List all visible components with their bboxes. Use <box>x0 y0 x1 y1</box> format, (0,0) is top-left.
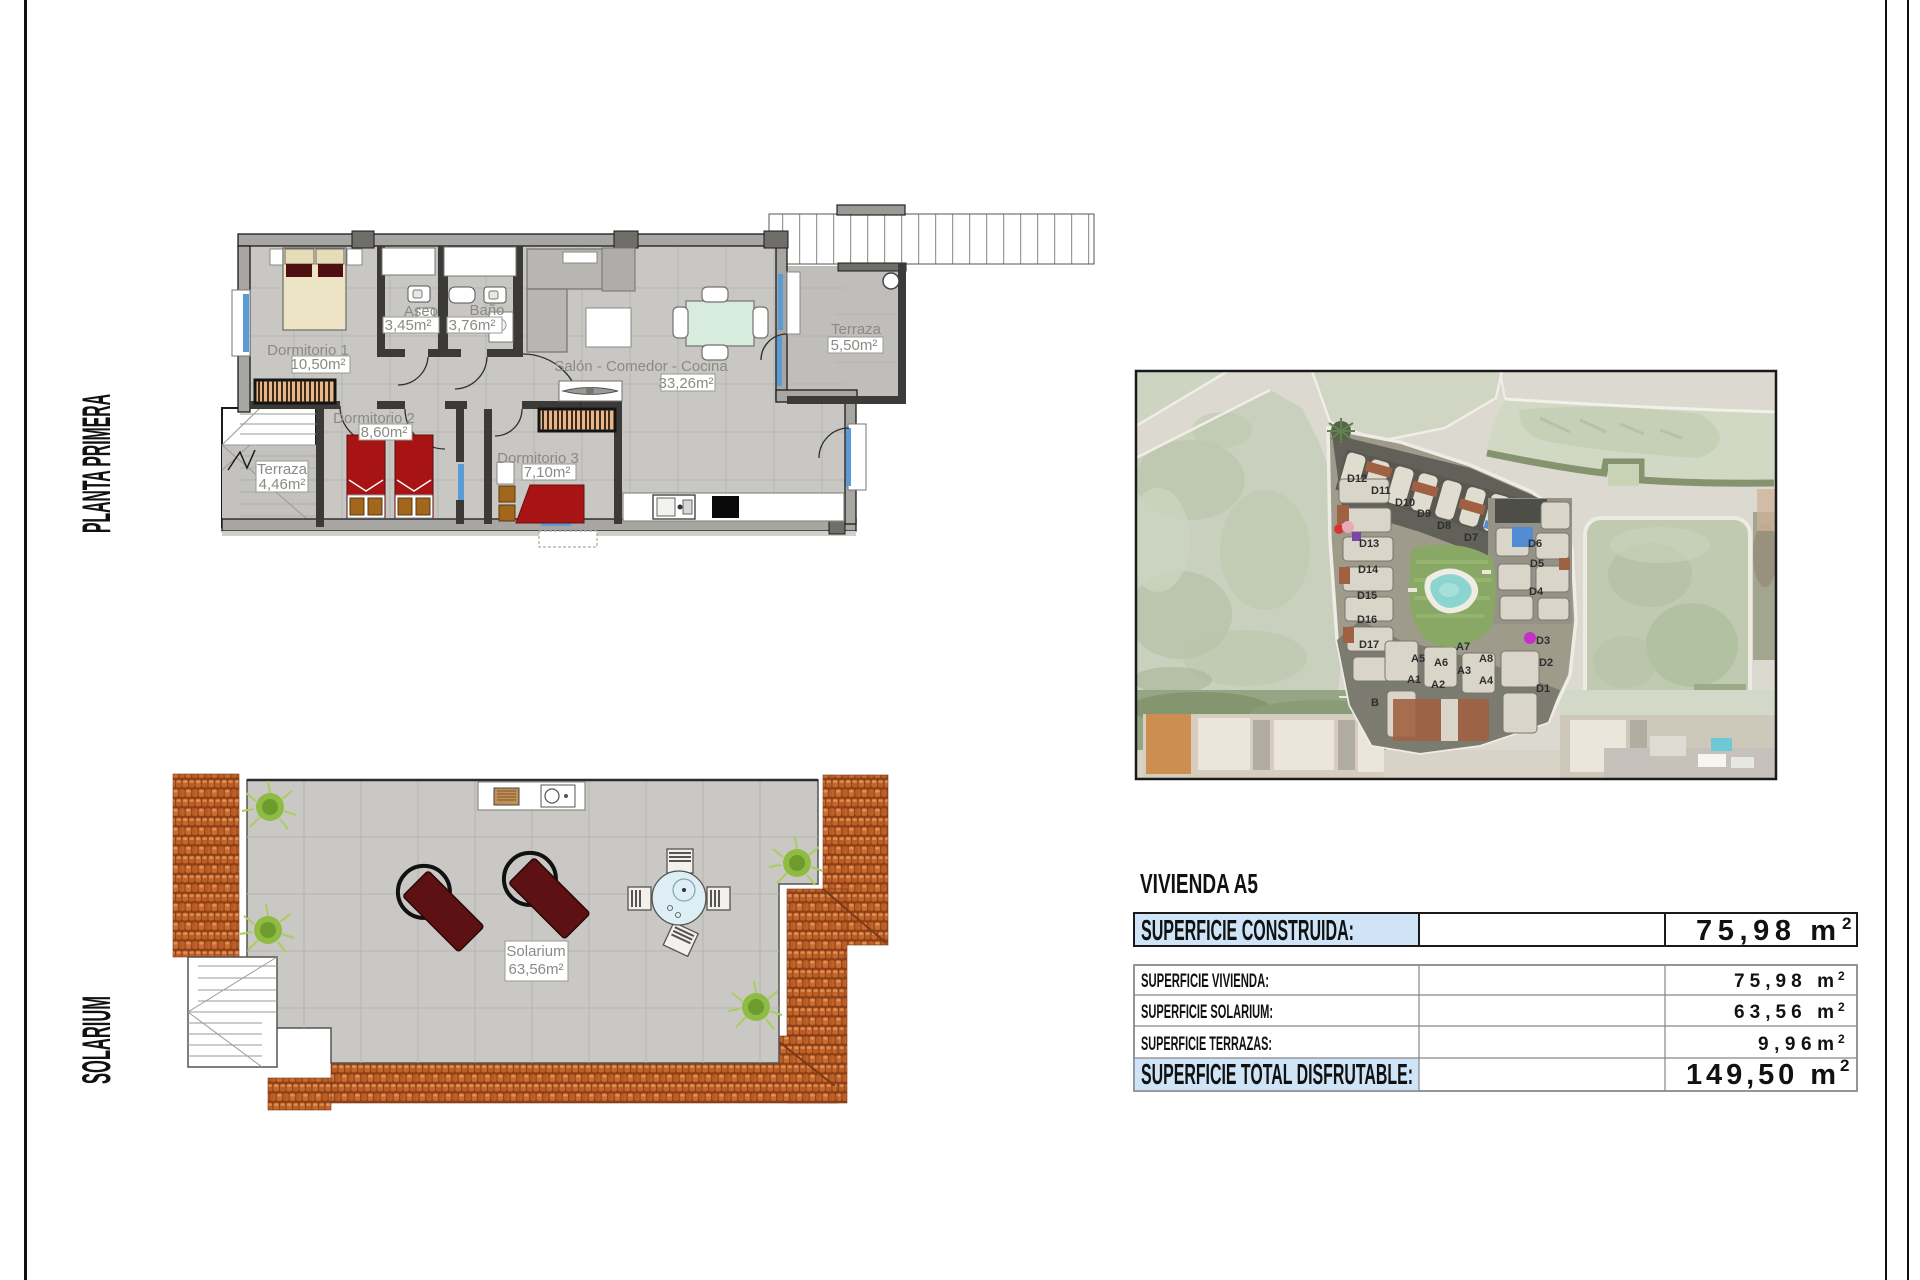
svg-text:SUPERFICIE TERRAZAS:: SUPERFICIE TERRAZAS: <box>1141 1034 1272 1055</box>
svg-text:2: 2 <box>1838 969 1845 983</box>
svg-text:SUPERFICIE SOLARIUM:: SUPERFICIE SOLARIUM: <box>1141 1002 1273 1023</box>
svg-text:7,10m²: 7,10m² <box>524 464 571 481</box>
svg-text:VIVIENDA A5: VIVIENDA A5 <box>1140 868 1258 899</box>
svg-text:63,56m²: 63,56m² <box>508 961 563 978</box>
svg-text:SUPERFICIE TOTAL DISFRUTABLE:: SUPERFICIE TOTAL DISFRUTABLE: <box>1141 1059 1413 1091</box>
svg-text:3,76m²: 3,76m² <box>449 317 496 334</box>
svg-text:2: 2 <box>1842 914 1851 933</box>
svg-text:SOLARIUM: SOLARIUM <box>75 996 119 1084</box>
svg-text:5,50m²: 5,50m² <box>831 337 878 354</box>
svg-text:63,56 m: 63,56 m <box>1734 1002 1834 1023</box>
svg-text:33,26m²: 33,26m² <box>658 375 713 392</box>
svg-text:SUPERFICIE VIVIENDA:: SUPERFICIE VIVIENDA: <box>1141 971 1269 992</box>
svg-text:10,50m²: 10,50m² <box>290 356 345 373</box>
svg-text:75,98 m: 75,98 m <box>1734 971 1834 992</box>
svg-text:3,45m²: 3,45m² <box>385 317 432 334</box>
svg-text:2: 2 <box>1840 1056 1849 1075</box>
svg-text:4,46m²: 4,46m² <box>259 476 306 493</box>
svg-text:PLANTA PRIMERA: PLANTA PRIMERA <box>75 394 119 533</box>
svg-text:2: 2 <box>1838 1032 1845 1046</box>
svg-text:Salón - Comedor - Cocina: Salón - Comedor - Cocina <box>554 358 728 375</box>
svg-text:SUPERFICIE CONSTRUIDA:: SUPERFICIE CONSTRUIDA: <box>1141 915 1354 947</box>
svg-text:75,98 m: 75,98 m <box>1696 915 1836 947</box>
svg-text:8,60m²: 8,60m² <box>361 424 408 441</box>
svg-text:149,50 m: 149,50 m <box>1686 1059 1836 1091</box>
svg-text:2: 2 <box>1838 1000 1845 1014</box>
svg-text:Terraza: Terraza <box>831 321 882 338</box>
svg-text:Solarium: Solarium <box>506 943 565 960</box>
